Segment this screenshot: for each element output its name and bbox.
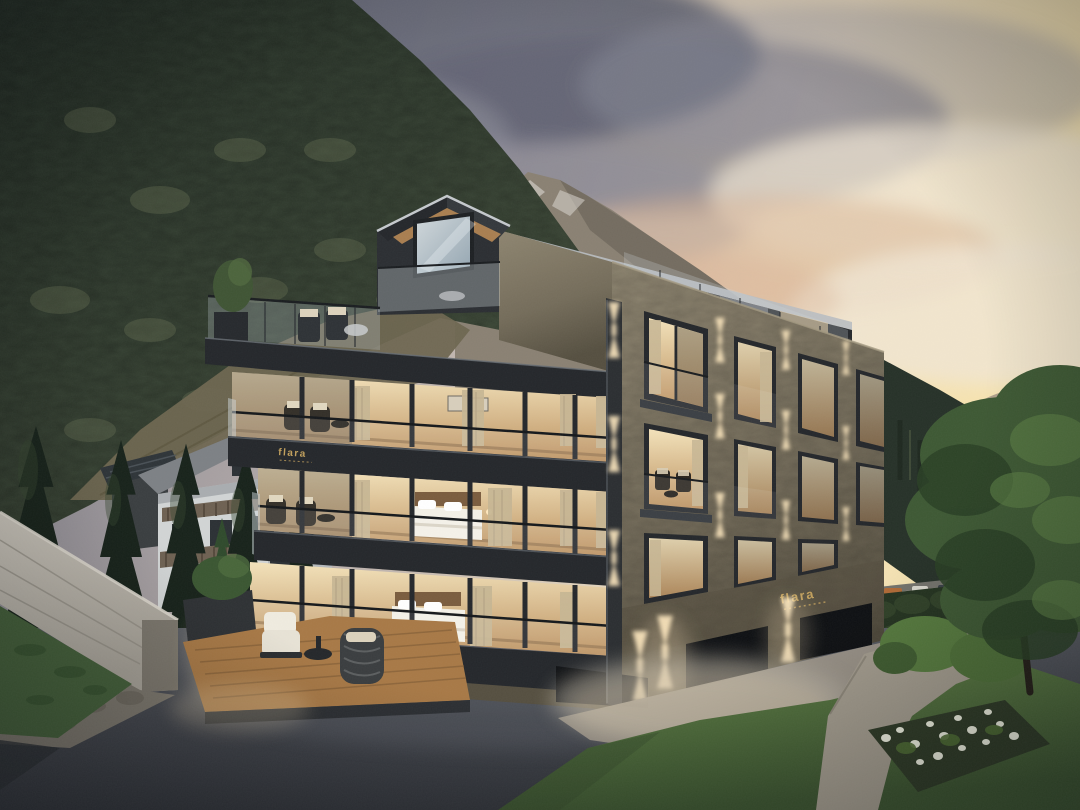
film-grain xyxy=(0,0,1080,810)
scene-svg: flara xyxy=(0,0,1080,810)
rendering-canvas: Modern four-storey stone and glass apart… xyxy=(0,0,1080,810)
